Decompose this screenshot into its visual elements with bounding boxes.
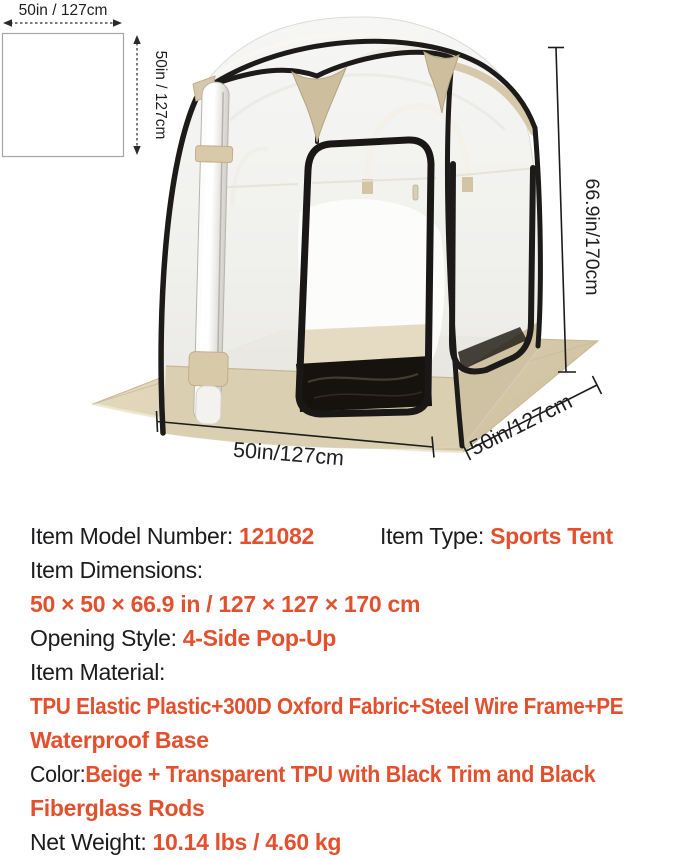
floor-area-diagram: 50in / 127cm 50in / 127cm	[3, 2, 170, 157]
depth-cap-right	[593, 376, 602, 394]
spec-row-weight: Net Weight: 10.14 lbs / 4.60 kg	[30, 825, 670, 859]
model-number-label: Item Model Number:	[30, 523, 239, 549]
spec-row-dimensions-label: Item Dimensions:	[30, 553, 670, 587]
footprint-side-label: 50in / 127cm	[152, 51, 169, 140]
opening-style-label: Opening Style:	[30, 625, 183, 651]
material-label: Item Material:	[30, 659, 165, 685]
footprint-top-label: 50in / 127cm	[19, 2, 108, 19]
net-weight-label: Net Weight:	[30, 829, 153, 855]
door-strap-bottom	[188, 351, 228, 386]
arrow-up-icon	[133, 35, 140, 44]
spec-row-model-type: Item Model Number: 121082 Item Type: Spo…	[30, 519, 670, 553]
height-line	[556, 48, 566, 372]
spec-row-color: Color:Beige + Transparent TPU with Black…	[30, 757, 670, 791]
tent-illustration: 50in / 127cm 50in / 127cm	[0, 0, 679, 505]
material-value-line1: TPU Elastic Plastic+300D Oxford Fabric+S…	[30, 693, 623, 719]
dimensions-value: 50 × 50 × 66.9 in / 127 × 127 × 170 cm	[30, 591, 420, 617]
spec-list: Item Model Number: 121082 Item Type: Spo…	[30, 519, 670, 859]
spec-row-opening-style: Opening Style: 4-Side Pop-Up	[30, 621, 670, 655]
color-label: Color:	[30, 761, 85, 787]
spec-row-material-value2: Waterproof Base	[30, 723, 670, 757]
tent-illustration-svg: 50in / 127cm 50in / 127cm	[0, 0, 679, 505]
zipper-pull	[413, 185, 418, 200]
item-type-group: Item Type: Sports Tent	[380, 519, 613, 553]
spec-row-material-value1: TPU Elastic Plastic+300D Oxford Fabric+S…	[30, 689, 670, 723]
net-weight-value: 10.14 lbs / 4.60 kg	[153, 829, 342, 855]
spec-row-dimensions-value: 50 × 50 × 66.9 in / 127 × 127 × 170 cm	[30, 587, 670, 621]
floor-square	[3, 34, 124, 157]
height-dimension-label: 66.9in/170cm	[581, 178, 603, 295]
arch-foot-right	[462, 177, 473, 192]
arrow-down-icon	[133, 146, 140, 155]
color-value-line2: Fiberglass Rods	[30, 795, 204, 821]
door-strap-top	[195, 146, 232, 163]
item-type-value: Sports Tent	[490, 523, 613, 549]
item-type-label: Item Type:	[380, 523, 490, 549]
tent-floor	[296, 356, 432, 412]
model-number-value: 121082	[239, 523, 314, 549]
arrow-right-icon	[113, 19, 122, 26]
color-value-line1: Beige + Transparent TPU with Black Trim …	[85, 761, 595, 787]
opening-style-value: 4-Side Pop-Up	[183, 625, 336, 651]
spec-row-color-line2: Fiberglass Rods	[30, 791, 670, 825]
spec-row-material-label: Item Material:	[30, 655, 670, 689]
dimensions-label: Item Dimensions:	[30, 557, 203, 583]
arrow-left-icon	[3, 19, 12, 26]
product-dimension-sheet: { "colors": { "accent": "#e2502d", "dark…	[0, 0, 679, 855]
material-value-line2: Waterproof Base	[30, 727, 209, 753]
roll-end-cap	[195, 386, 221, 425]
